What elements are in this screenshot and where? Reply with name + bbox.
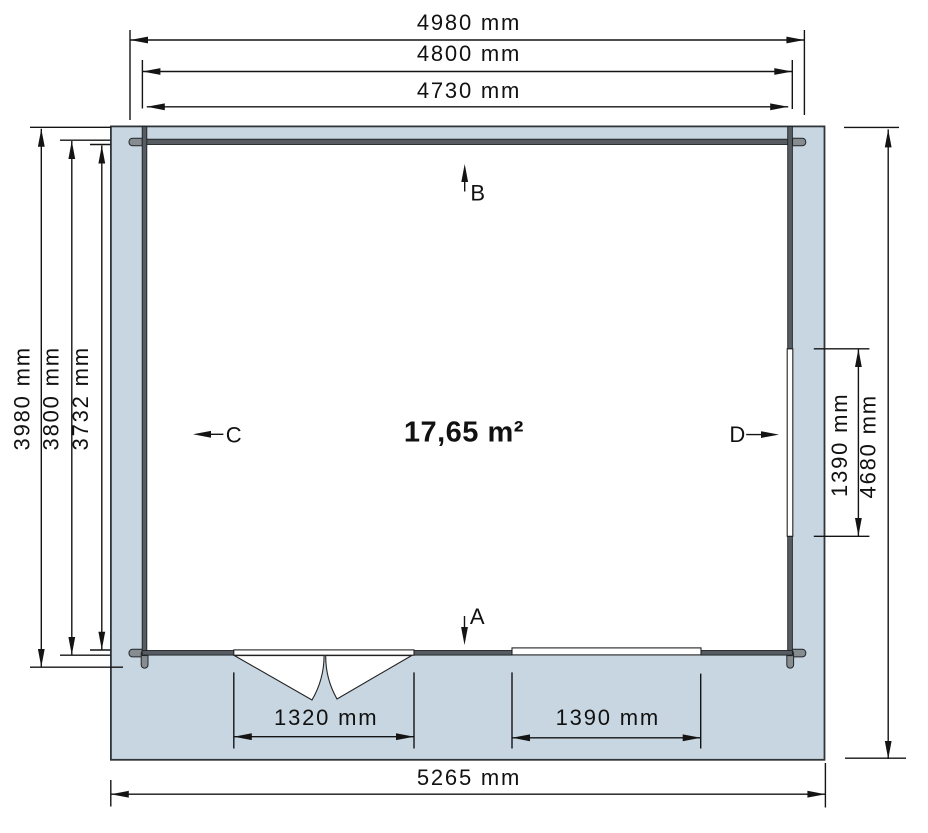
- svg-text:4980 mm: 4980 mm: [417, 10, 521, 35]
- svg-text:1320 mm: 1320 mm: [274, 705, 378, 730]
- svg-text:4800 mm: 4800 mm: [417, 41, 521, 66]
- svg-text:5265 mm: 5265 mm: [417, 765, 521, 790]
- svg-text:A: A: [470, 604, 485, 629]
- svg-text:4680 mm: 4680 mm: [856, 394, 881, 498]
- svg-text:B: B: [470, 181, 485, 206]
- svg-text:3732 mm: 3732 mm: [68, 346, 93, 450]
- svg-text:3980 mm: 3980 mm: [9, 346, 34, 450]
- svg-text:D: D: [729, 422, 745, 447]
- svg-text:1390 mm: 1390 mm: [556, 705, 660, 730]
- svg-text:17,65 m²: 17,65 m²: [404, 417, 524, 449]
- svg-text:4730 mm: 4730 mm: [417, 78, 521, 103]
- svg-text:1390 mm: 1390 mm: [827, 393, 852, 497]
- svg-text:C: C: [226, 423, 242, 448]
- svg-text:3800 mm: 3800 mm: [39, 346, 64, 450]
